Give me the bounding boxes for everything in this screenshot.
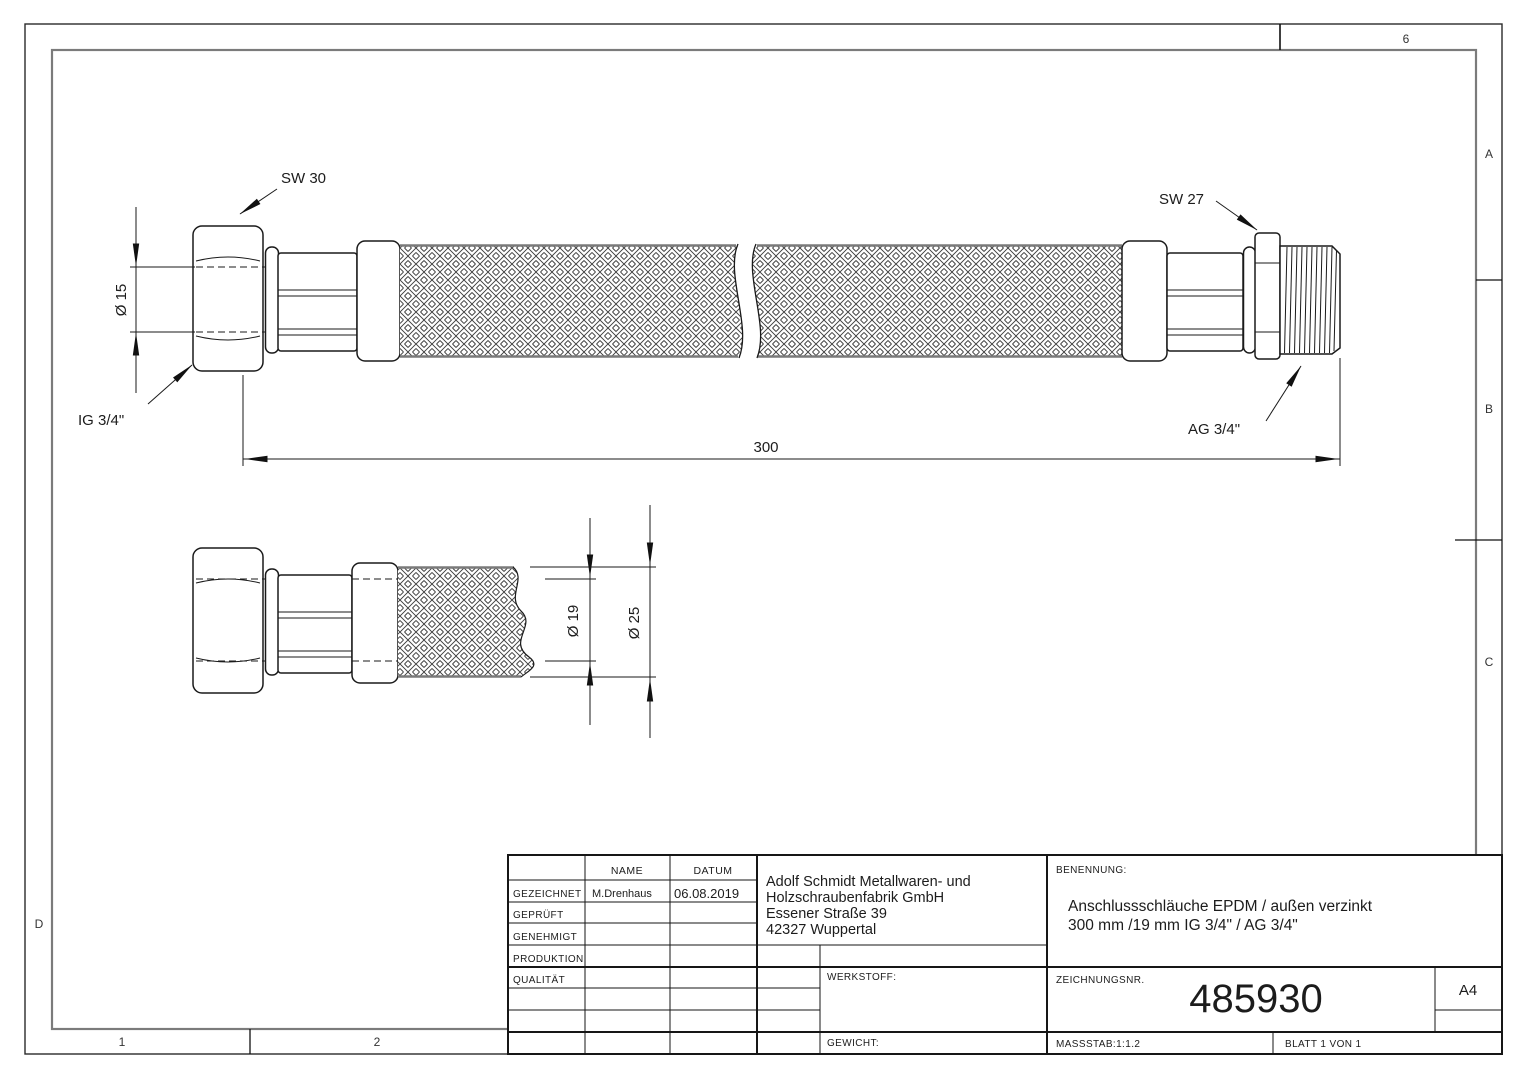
zone-label-c: C [1485, 655, 1494, 669]
zone-label-1: 1 [119, 1035, 126, 1049]
sw30-label: SW 30 [281, 170, 326, 187]
company-line: Essener Straße 39 [766, 906, 887, 922]
crimp-ring-right [1244, 247, 1256, 353]
company-line: Holzschraubenfabrik GmbH [766, 890, 944, 906]
col-name-header: NAME [611, 865, 643, 877]
gewicht-label: GEWICHT: [827, 1038, 879, 1049]
zone-label-b: B [1485, 402, 1493, 416]
dia15-label: Ø 15 [113, 284, 130, 317]
zone-label-a: A [1485, 147, 1493, 161]
approval-row-date: 06.08.2019 [674, 886, 739, 901]
company-line: 42327 Wuppertal [766, 922, 876, 938]
zone-label-2: 2 [374, 1035, 381, 1049]
dia19-label: Ø 19 [565, 605, 582, 638]
approval-row-label: QUALITÄT [513, 974, 565, 986]
crimp-ring-left [266, 247, 279, 353]
company-line: Adolf Schmidt Metallwaren- und [766, 874, 971, 890]
approval-row-label: GEZEICHNET [513, 889, 581, 900]
hex-nut-right [1255, 233, 1280, 359]
approval-row-label: PRODUKTION [513, 954, 584, 965]
format-label: A4 [1459, 982, 1477, 999]
sw27-label: SW 27 [1159, 191, 1204, 208]
massstab-label: MASSSTAB:1:1.2 [1056, 1039, 1140, 1050]
benennung-label: BENENNUNG: [1056, 865, 1127, 876]
collar-right [1122, 241, 1167, 361]
collar-detail [352, 563, 398, 683]
collar-left [357, 241, 400, 361]
zone-label-6: 6 [1403, 32, 1410, 46]
werkstoff-label: WERKSTOFF: [827, 972, 896, 983]
blatt-label: BLATT 1 VON 1 [1285, 1039, 1362, 1050]
male-thread [1280, 246, 1340, 354]
dia25-label: Ø 25 [626, 607, 643, 640]
length-label: 300 [753, 439, 778, 456]
ferrule-left [278, 253, 357, 351]
ig-label: IG 3/4" [78, 412, 124, 429]
approval-row-label: GENEHMIGT [513, 932, 577, 943]
approval-row-name: M.Drenhaus [592, 888, 652, 900]
part-title-line2: 300 mm /19 mm IG 3/4" / AG 3/4" [1068, 917, 1298, 934]
braided-hose [400, 244, 1122, 358]
braid-detail [398, 567, 534, 677]
zone-label-d: D [35, 917, 44, 931]
part-title-line1: Anschlussschläuche EPDM / außen verzinkt [1068, 898, 1373, 915]
ferrule-right [1167, 253, 1243, 351]
col-date-header: DATUM [693, 865, 732, 877]
crimp-ring-detail [266, 569, 279, 675]
ferrule-detail [278, 575, 352, 673]
zeichnungsnr-label: ZEICHNUNGSNR. [1056, 975, 1145, 986]
approval-row-label: GEPRÜFT [513, 909, 564, 921]
technical-drawing: 6 A B C D 1 2 [0, 0, 1528, 1080]
ag-label: AG 3/4" [1188, 421, 1240, 438]
drawing-number: 485930 [1189, 977, 1322, 1021]
title-block: NAME DATUM GEZEICHNET M.Drenhaus 06.08.2… [508, 855, 1502, 1054]
drawing-sheet: 6 A B C D 1 2 [0, 0, 1528, 1080]
